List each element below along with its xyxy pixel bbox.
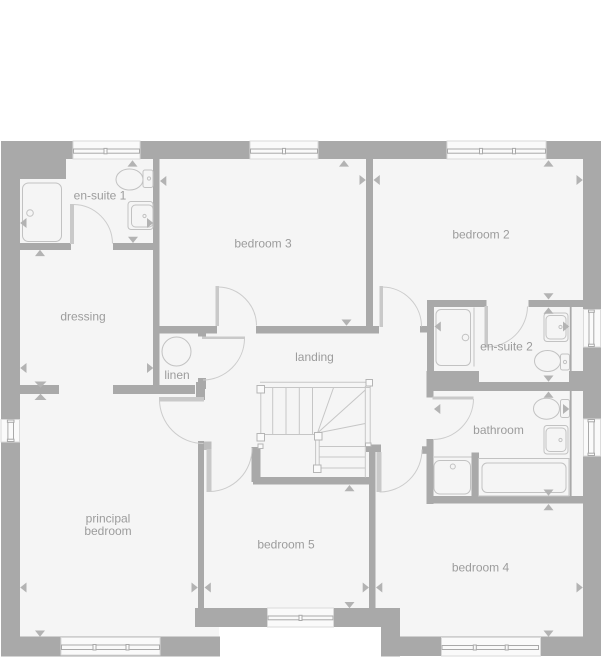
svg-text:en-suite 1: en-suite 1: [74, 189, 127, 203]
svg-text:bedroom 5: bedroom 5: [257, 538, 315, 552]
svg-text:bedroom 3: bedroom 3: [234, 237, 292, 251]
svg-text:landing: landing: [295, 350, 334, 364]
svg-text:linen: linen: [164, 368, 189, 382]
svg-text:en-suite 2: en-suite 2: [480, 340, 533, 354]
svg-text:bathroom: bathroom: [473, 423, 524, 437]
svg-text:bedroom 4: bedroom 4: [452, 561, 510, 575]
svg-text:bedroom: bedroom: [84, 524, 131, 538]
svg-text:bedroom 2: bedroom 2: [452, 228, 510, 242]
svg-text:dressing: dressing: [60, 310, 105, 324]
